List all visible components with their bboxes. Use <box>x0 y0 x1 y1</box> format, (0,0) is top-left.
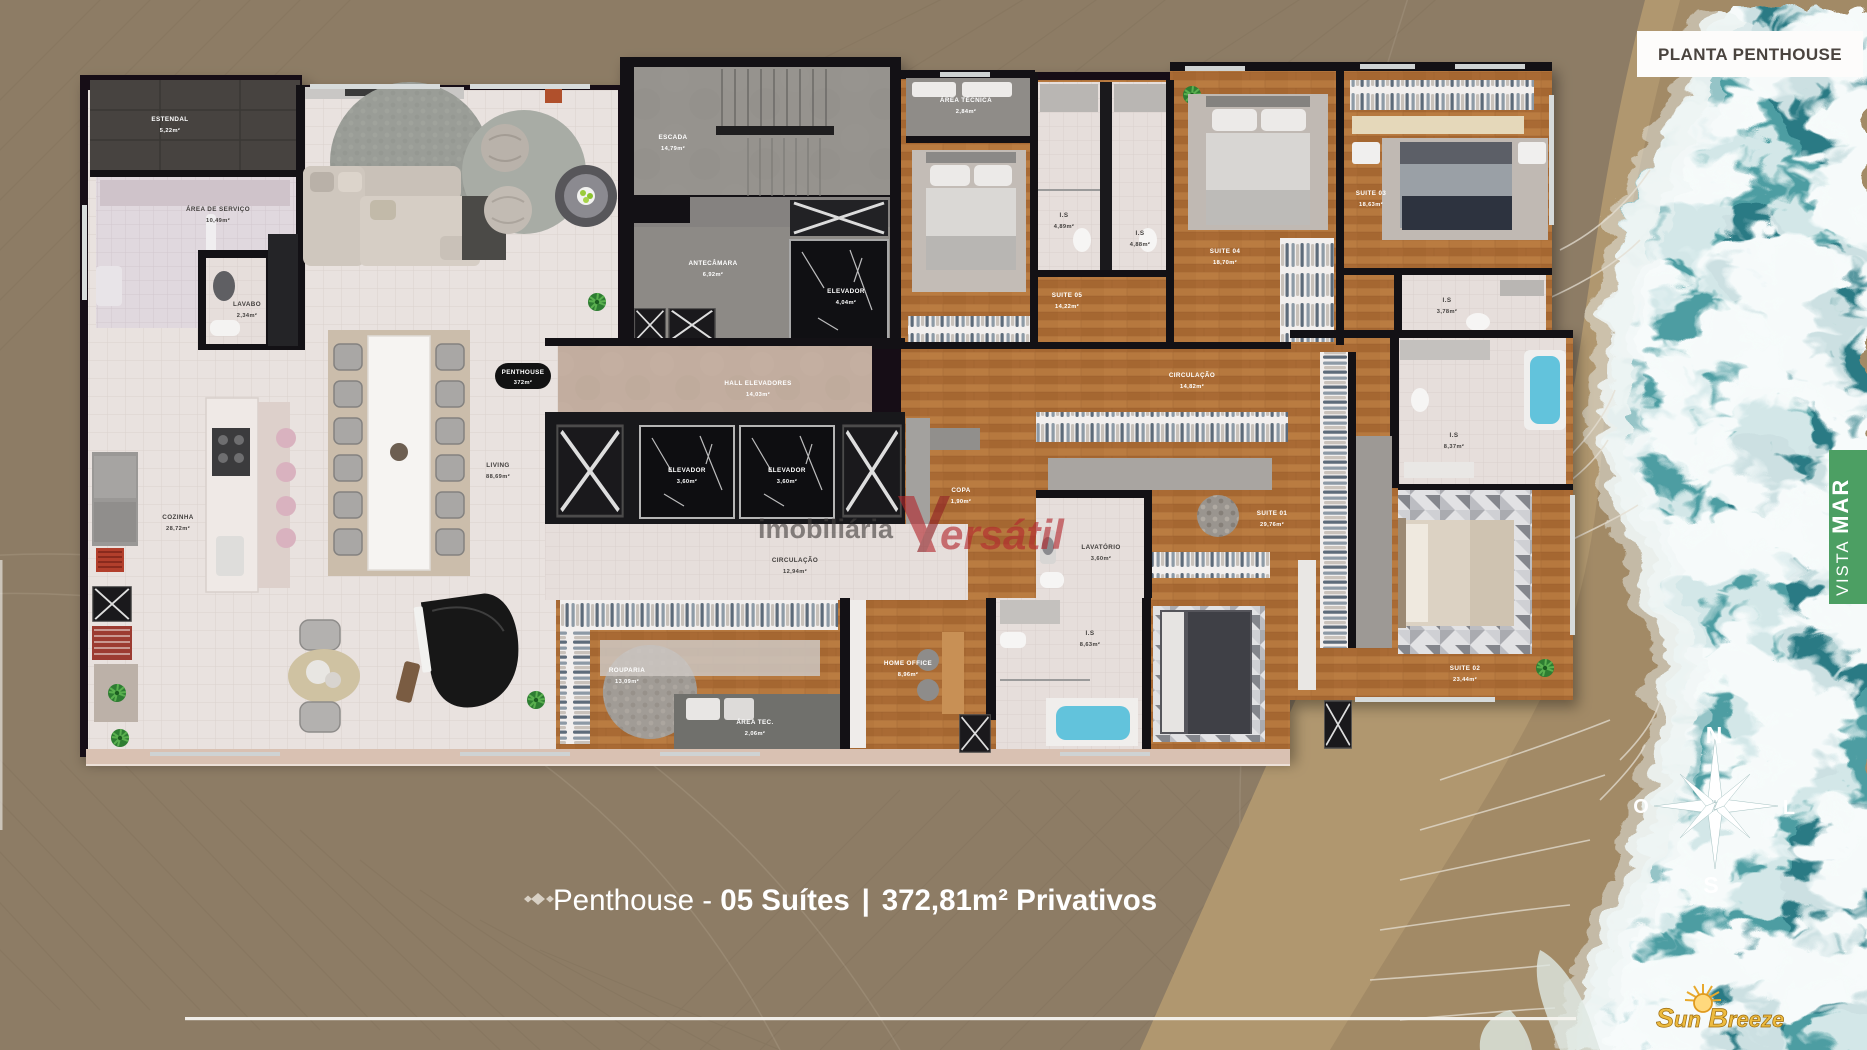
svg-text:CIRCULAÇÃO: CIRCULAÇÃO <box>1169 370 1215 379</box>
svg-text:10,49m²: 10,49m² <box>206 217 230 224</box>
svg-text:3,60m²: 3,60m² <box>677 478 697 485</box>
svg-text:SUITE 03: SUITE 03 <box>1356 190 1387 197</box>
svg-text:I.S: I.S <box>1450 432 1459 439</box>
svg-text:I.S: I.S <box>1086 630 1095 637</box>
svg-text:23,44m²: 23,44m² <box>1453 676 1477 683</box>
svg-text:N: N <box>1706 722 1723 748</box>
svg-text:ELEVADOR: ELEVADOR <box>768 467 806 474</box>
svg-text:5,22m²: 5,22m² <box>160 127 180 134</box>
svg-text:COZINHA: COZINHA <box>162 514 194 521</box>
svg-text:3,78m²: 3,78m² <box>1437 308 1457 315</box>
svg-text:ESTENDAL: ESTENDAL <box>151 116 188 123</box>
svg-text:12,94m²: 12,94m² <box>783 568 807 575</box>
svg-text:HOME OFFICE: HOME OFFICE <box>884 660 932 667</box>
svg-text:88,69m²: 88,69m² <box>486 473 510 480</box>
svg-text:18,63m²: 18,63m² <box>1359 201 1383 208</box>
svg-text:COPA: COPA <box>951 487 970 494</box>
svg-text:PLANTA PENTHOUSE: PLANTA PENTHOUSE <box>1658 45 1842 64</box>
svg-text:Sun Breeze: Sun Breeze <box>1656 1003 1784 1033</box>
svg-text:CIRCULAÇÃO: CIRCULAÇÃO <box>772 555 818 564</box>
svg-text:I.S: I.S <box>1136 230 1145 237</box>
svg-text:SUITE 01: SUITE 01 <box>1257 510 1288 517</box>
svg-text:6,92m²: 6,92m² <box>703 271 723 278</box>
svg-text:SUITE 04: SUITE 04 <box>1210 248 1241 255</box>
svg-text:ÁREA TEC.: ÁREA TEC. <box>736 717 773 726</box>
svg-text:372m²: 372m² <box>514 379 532 386</box>
svg-text:4,89m²: 4,89m² <box>1054 223 1074 230</box>
svg-text:18,70m²: 18,70m² <box>1213 259 1237 266</box>
svg-text:I.S: I.S <box>1060 212 1069 219</box>
svg-text:ESCADA: ESCADA <box>659 134 688 141</box>
svg-text:14,22m²: 14,22m² <box>1055 303 1079 310</box>
svg-text:4,04m²: 4,04m² <box>836 299 856 306</box>
svg-text:Penthouse - 05 Suítes | 372,: Penthouse - 05 Suítes | 372,81m² Privati… <box>553 884 1157 917</box>
svg-text:8,63m²: 8,63m² <box>1080 641 1100 648</box>
svg-text:SUITE 05: SUITE 05 <box>1052 292 1083 299</box>
svg-text:LIVING: LIVING <box>486 462 509 469</box>
svg-text:ELEVADOR: ELEVADOR <box>827 288 865 295</box>
svg-text:ersátil: ersátil <box>940 511 1065 558</box>
svg-text:8,96m²: 8,96m² <box>898 671 918 678</box>
svg-text:3,60m²: 3,60m² <box>777 478 797 485</box>
svg-text:ÁREA TÉCNICA: ÁREA TÉCNICA <box>940 95 992 104</box>
svg-text:2,84m²: 2,84m² <box>956 108 976 115</box>
svg-text:1,90m²: 1,90m² <box>951 498 971 505</box>
svg-text:ANTECÂMARA: ANTECÂMARA <box>688 258 737 267</box>
svg-text:O: O <box>1633 796 1649 818</box>
svg-text:13,09m²: 13,09m² <box>615 678 639 685</box>
svg-text:14,82m²: 14,82m² <box>1180 383 1204 390</box>
svg-text:L: L <box>1783 797 1795 819</box>
svg-text:4,88m²: 4,88m² <box>1130 241 1150 248</box>
svg-text:3,60m²: 3,60m² <box>1091 555 1111 562</box>
svg-text:ROUPARIA: ROUPARIA <box>609 667 645 674</box>
svg-text:2,06m²: 2,06m² <box>745 730 765 737</box>
svg-text:14,03m²: 14,03m² <box>746 391 770 398</box>
svg-text:14,79m²: 14,79m² <box>661 145 685 152</box>
svg-text:I.S: I.S <box>1443 297 1452 304</box>
svg-text:LAVABO: LAVABO <box>233 301 261 308</box>
svg-text:HALL ELEVADORES: HALL ELEVADORES <box>724 380 791 387</box>
svg-text:29,76m²: 29,76m² <box>1260 521 1284 528</box>
svg-text:2,34m²: 2,34m² <box>237 312 257 319</box>
svg-text:8,37m²: 8,37m² <box>1444 443 1464 450</box>
svg-text:LAVATÓRIO: LAVATÓRIO <box>1081 542 1120 551</box>
svg-text:ELEVADOR: ELEVADOR <box>668 467 706 474</box>
svg-text:imobiliária: imobiliária <box>758 514 894 544</box>
svg-text:S: S <box>1703 872 1718 898</box>
svg-text:PENTHOUSE: PENTHOUSE <box>502 369 545 376</box>
svg-text:ÁREA DE SERVIÇO: ÁREA DE SERVIÇO <box>186 204 250 213</box>
svg-text:SUITE 02: SUITE 02 <box>1450 665 1481 672</box>
svg-text:28,72m²: 28,72m² <box>166 525 190 532</box>
